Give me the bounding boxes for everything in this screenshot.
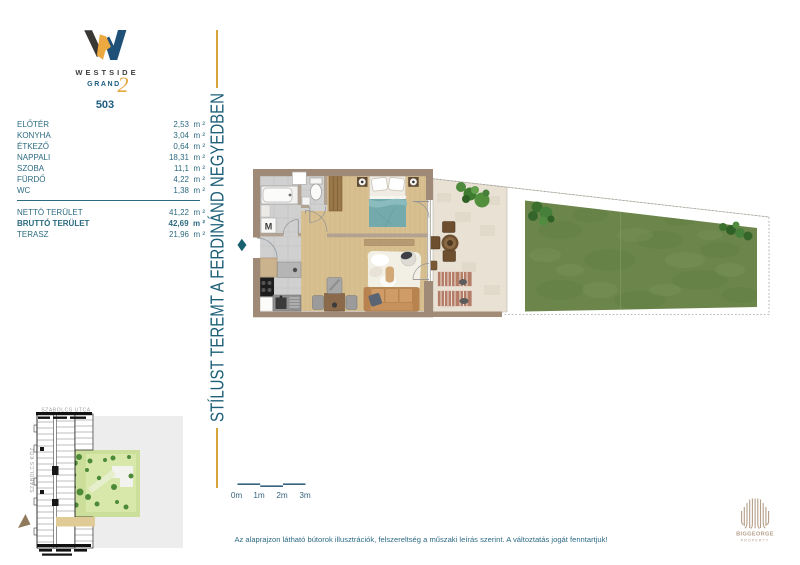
- svg-text:SZABOLCS KÖZ: SZABOLCS KÖZ: [29, 447, 36, 493]
- svg-text:2m: 2m: [276, 491, 288, 500]
- svg-text:M: M: [265, 222, 273, 232]
- svg-text:PROPERTY: PROPERTY: [741, 539, 770, 543]
- svg-text:BIGGEORGE: BIGGEORGE: [736, 532, 774, 538]
- svg-text:2: 2: [118, 72, 129, 97]
- svg-text:GRAND: GRAND: [87, 81, 121, 88]
- svg-text:WESTSIDE: WESTSIDE: [75, 68, 138, 77]
- svg-text:STÍLUST TEREMT A FERDINÁND NEG: STÍLUST TEREMT A FERDINÁND NEGYEDBEN: [208, 93, 228, 422]
- svg-text:0m: 0m: [231, 491, 243, 500]
- svg-text:1m: 1m: [253, 491, 265, 500]
- svg-text:3m: 3m: [299, 491, 311, 500]
